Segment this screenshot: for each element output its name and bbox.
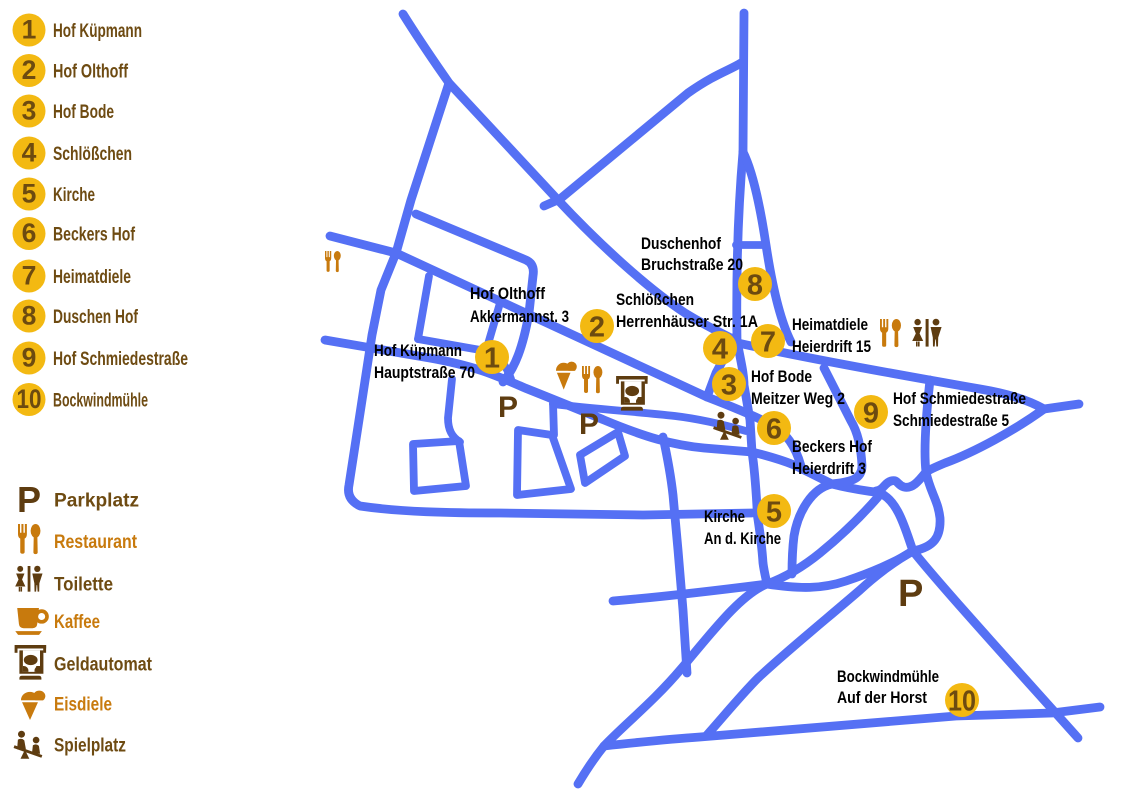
svg-text:Duschenhof: Duschenhof xyxy=(641,235,721,253)
svg-text:3: 3 xyxy=(721,370,737,402)
svg-text:P: P xyxy=(898,573,923,615)
svg-text:P: P xyxy=(498,391,518,424)
svg-text:Heierdrift 15: Heierdrift 15 xyxy=(792,338,871,356)
svg-text:Hof Küpmann: Hof Küpmann xyxy=(53,20,142,42)
svg-text:Beckers Hof: Beckers Hof xyxy=(53,224,135,246)
svg-text:5: 5 xyxy=(766,497,782,529)
svg-text:Akkermannst. 3: Akkermannst. 3 xyxy=(470,308,569,326)
svg-text:Hof Bode: Hof Bode xyxy=(53,101,114,123)
svg-text:8: 8 xyxy=(22,301,37,331)
svg-text:Geldautomat: Geldautomat xyxy=(54,654,152,676)
svg-text:Hof Schmiedestraße: Hof Schmiedestraße xyxy=(893,390,1026,408)
svg-text:P: P xyxy=(579,408,599,441)
svg-text:Restaurant: Restaurant xyxy=(54,531,137,553)
svg-text:3: 3 xyxy=(22,96,37,126)
svg-text:Parkplatz: Parkplatz xyxy=(54,490,139,512)
svg-text:5: 5 xyxy=(22,179,37,209)
svg-text:Hauptstraße 70: Hauptstraße 70 xyxy=(374,364,475,382)
svg-text:P: P xyxy=(17,479,41,520)
svg-text:7: 7 xyxy=(22,261,37,291)
svg-text:Herrenhäuser Str. 1A: Herrenhäuser Str. 1A xyxy=(616,313,758,331)
svg-text:Heimatdiele: Heimatdiele xyxy=(792,316,868,334)
svg-text:Heierdrift 3: Heierdrift 3 xyxy=(792,460,866,478)
svg-text:Auf der Horst: Auf der Horst xyxy=(837,689,927,707)
svg-text:6: 6 xyxy=(766,414,782,446)
svg-text:6: 6 xyxy=(22,218,37,248)
svg-text:8: 8 xyxy=(747,270,763,302)
svg-text:Hof Schmiedestraße: Hof Schmiedestraße xyxy=(53,348,188,370)
svg-text:Kirche: Kirche xyxy=(53,184,95,206)
svg-text:Bockwindmühle: Bockwindmühle xyxy=(53,390,148,412)
svg-text:Hof Küpmann: Hof Küpmann xyxy=(374,342,462,360)
svg-text:1: 1 xyxy=(22,15,37,45)
svg-text:2: 2 xyxy=(22,55,37,85)
svg-text:Bruchstraße 20: Bruchstraße 20 xyxy=(641,256,743,274)
svg-text:7: 7 xyxy=(760,327,776,359)
svg-text:4: 4 xyxy=(712,334,728,366)
svg-text:2: 2 xyxy=(589,312,605,344)
svg-text:Meitzer Weg 2: Meitzer Weg 2 xyxy=(751,390,845,408)
svg-text:Bockwindmühle: Bockwindmühle xyxy=(837,668,939,686)
svg-text:An d. Kirche: An d. Kirche xyxy=(704,530,781,548)
svg-text:Hof Olthoff: Hof Olthoff xyxy=(470,285,545,303)
svg-text:Hof Bode: Hof Bode xyxy=(751,368,812,386)
svg-text:9: 9 xyxy=(22,343,37,373)
svg-text:Eisdiele: Eisdiele xyxy=(54,694,112,716)
svg-text:Kaffee: Kaffee xyxy=(54,611,100,633)
svg-text:Beckers Hof: Beckers Hof xyxy=(792,438,872,456)
svg-text:9: 9 xyxy=(863,398,879,430)
svg-text:Schlößchen: Schlößchen xyxy=(616,291,694,309)
svg-text:10: 10 xyxy=(17,384,42,414)
svg-text:Heimatdiele: Heimatdiele xyxy=(53,266,131,288)
svg-text:4: 4 xyxy=(22,138,37,168)
svg-text:Kirche: Kirche xyxy=(704,508,745,526)
svg-text:Duschen Hof: Duschen Hof xyxy=(53,306,138,328)
svg-text:10: 10 xyxy=(948,686,976,718)
svg-text:Toilette: Toilette xyxy=(54,574,113,596)
svg-text:Schlößchen: Schlößchen xyxy=(53,143,132,165)
svg-text:Hof Olthoff: Hof Olthoff xyxy=(53,61,128,83)
svg-text:Spielplatz: Spielplatz xyxy=(54,735,126,757)
svg-text:1: 1 xyxy=(484,343,500,375)
svg-text:Schmiedestraße 5: Schmiedestraße 5 xyxy=(893,412,1009,430)
